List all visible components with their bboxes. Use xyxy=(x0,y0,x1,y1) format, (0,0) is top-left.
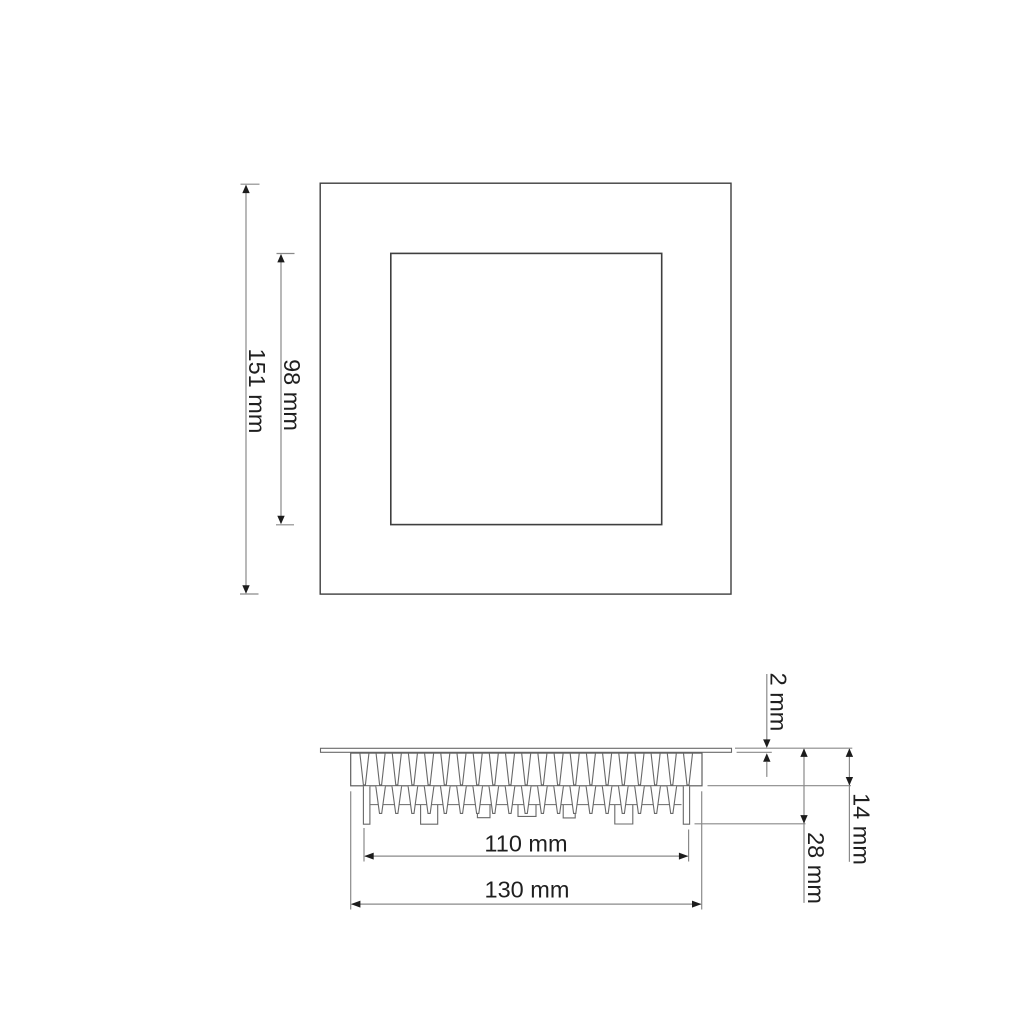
svg-text:98 mm: 98 mm xyxy=(279,359,305,431)
svg-text:151 mm: 151 mm xyxy=(244,349,270,434)
svg-text:14 mm: 14 mm xyxy=(849,793,875,865)
svg-text:2 mm: 2 mm xyxy=(766,673,792,732)
svg-text:110 mm: 110 mm xyxy=(484,831,567,857)
svg-text:130 mm: 130 mm xyxy=(485,877,570,903)
svg-text:28 mm: 28 mm xyxy=(803,832,829,904)
